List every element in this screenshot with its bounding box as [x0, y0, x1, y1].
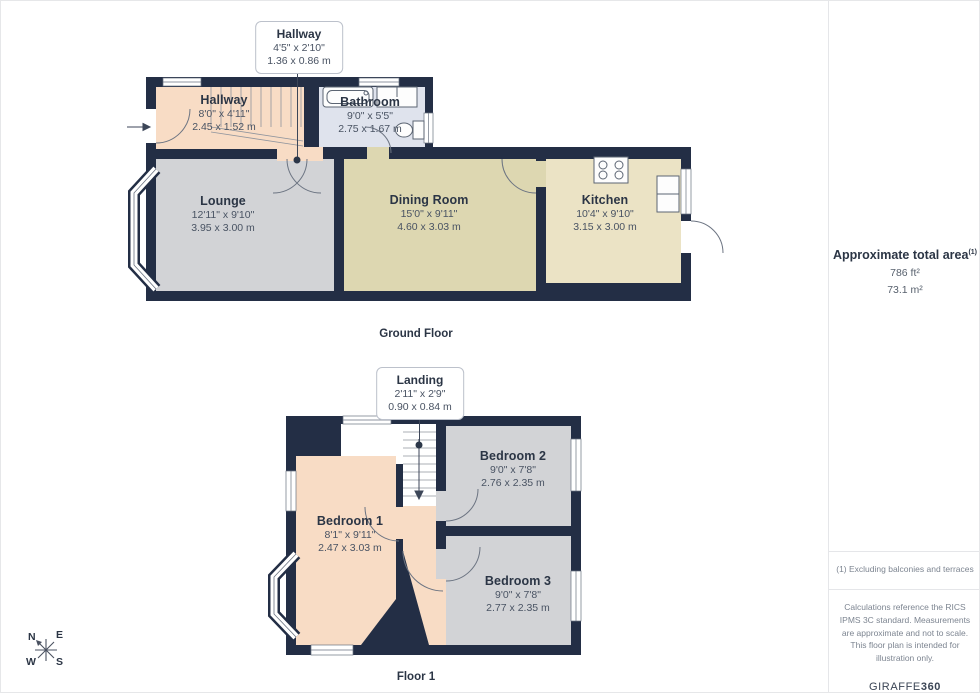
room-imperial: 9'0" x 5'5" — [338, 110, 402, 122]
room-name: Bedroom 1 — [317, 514, 383, 528]
callout-connector — [297, 65, 298, 157]
room-name: Bedroom 2 — [480, 449, 546, 463]
room-imperial: 12'11" x 9'10" — [191, 209, 255, 221]
brand-suffix: 360 — [921, 681, 941, 693]
compass-north: N — [28, 631, 36, 643]
callout-dot — [416, 442, 423, 449]
room-imperial: 9'0" x 7'8" — [485, 589, 551, 601]
room-label-bathroom: Bathroom 9'0" x 5'5" 2.75 x 1.67 m — [338, 95, 402, 135]
room-imperial: 10'4" x 9'10" — [573, 208, 637, 220]
room-metric: 2.47 x 3.03 m — [317, 542, 383, 554]
disclaimer-block: Calculations reference the RICS IPMS 3C … — [829, 601, 980, 693]
room-name: Bedroom 3 — [485, 574, 551, 588]
room-metric: 2.45 x 1.52 m — [192, 121, 256, 133]
room-label-kitchen: Kitchen 10'4" x 9'10" 3.15 x 3.00 m — [573, 193, 637, 233]
callout-dot — [294, 157, 301, 164]
total-area-block: Approximate total area(1) 786 ft² 73.1 m… — [829, 248, 980, 296]
floor-1-plan — [241, 409, 611, 669]
room-metric: 3.95 x 3.00 m — [191, 222, 255, 234]
room-label-lounge: Lounge 12'11" x 9'10" 3.95 x 3.00 m — [191, 194, 255, 234]
room-label-bedroom-2: Bedroom 2 9'0" x 7'8" 2.76 x 2.35 m — [480, 449, 546, 489]
kitchen-counter-icon — [657, 176, 679, 212]
floor-1-label: Floor 1 — [397, 671, 435, 683]
room-name: Bathroom — [338, 95, 402, 109]
callout-title: Landing — [388, 373, 452, 387]
ground-floor-label: Ground Floor — [379, 328, 452, 340]
area-title-text: Approximate total area — [833, 248, 968, 262]
room-metric: 2.75 x 1.67 m — [338, 123, 402, 135]
room-label-dining: Dining Room 15'0" x 9'11" 4.60 x 3.03 m — [390, 193, 469, 233]
area-imperial: 786 ft² — [829, 267, 980, 279]
callout-landing: Landing 2'11" x 2'9" 0.90 x 0.84 m — [376, 367, 464, 420]
area-title: Approximate total area(1) — [829, 248, 980, 262]
stove-icon — [594, 157, 628, 183]
room-name: Hallway — [192, 93, 256, 107]
floorplan-page: Hallway 4'5" x 2'10" 1.36 x 0.86 m Landi… — [0, 0, 980, 693]
disclaimer-text: Calculations reference the RICS IPMS 3C … — [829, 601, 980, 665]
callout-imperial: 2'11" x 2'9" — [388, 388, 452, 400]
room-imperial: 9'0" x 7'8" — [480, 464, 546, 476]
room-name: Dining Room — [390, 193, 469, 207]
footnote-divider-bottom — [828, 589, 980, 590]
callout-title: Hallway — [267, 27, 331, 41]
room-label-bedroom-3: Bedroom 3 9'0" x 7'8" 2.77 x 2.35 m — [485, 574, 551, 614]
compass-west: W — [26, 656, 36, 668]
compass-south: S — [56, 656, 63, 668]
room-name: Kitchen — [573, 193, 637, 207]
compass-east: E — [56, 629, 63, 641]
room-label-bedroom-1: Bedroom 1 8'1" x 9'11" 2.47 x 3.03 m — [317, 514, 383, 554]
room-metric: 3.15 x 3.00 m — [573, 221, 637, 233]
room-name: Lounge — [191, 194, 255, 208]
callout-hallway: Hallway 4'5" x 2'10" 1.36 x 0.86 m — [255, 21, 343, 74]
room-imperial: 8'1" x 9'11" — [317, 529, 383, 541]
room-metric: 2.76 x 2.35 m — [480, 477, 546, 489]
room-metric: 4.60 x 3.03 m — [390, 221, 469, 233]
brand-name: GIRAFFE — [869, 681, 921, 693]
room-imperial: 8'0" x 4'11" — [192, 108, 256, 120]
callout-imperial: 4'5" x 2'10" — [267, 42, 331, 54]
giraffe360-logo: GIRAFFE360 — [829, 681, 980, 693]
area-metric: 73.1 m² — [829, 284, 980, 296]
area-footnote-marker: (1) — [968, 249, 977, 256]
callout-metric: 0.90 x 0.84 m — [388, 401, 452, 413]
footnote-divider-top — [828, 551, 980, 552]
area-footnote: (1) Excluding balconies and terraces — [829, 563, 980, 576]
compass-rose: N E W S — [25, 627, 71, 673]
room-imperial: 15'0" x 9'11" — [390, 208, 469, 220]
room-metric: 2.77 x 2.35 m — [485, 602, 551, 614]
callout-metric: 1.36 x 0.86 m — [267, 55, 331, 67]
room-label-hallway: Hallway 8'0" x 4'11" 2.45 x 1.52 m — [192, 93, 256, 133]
